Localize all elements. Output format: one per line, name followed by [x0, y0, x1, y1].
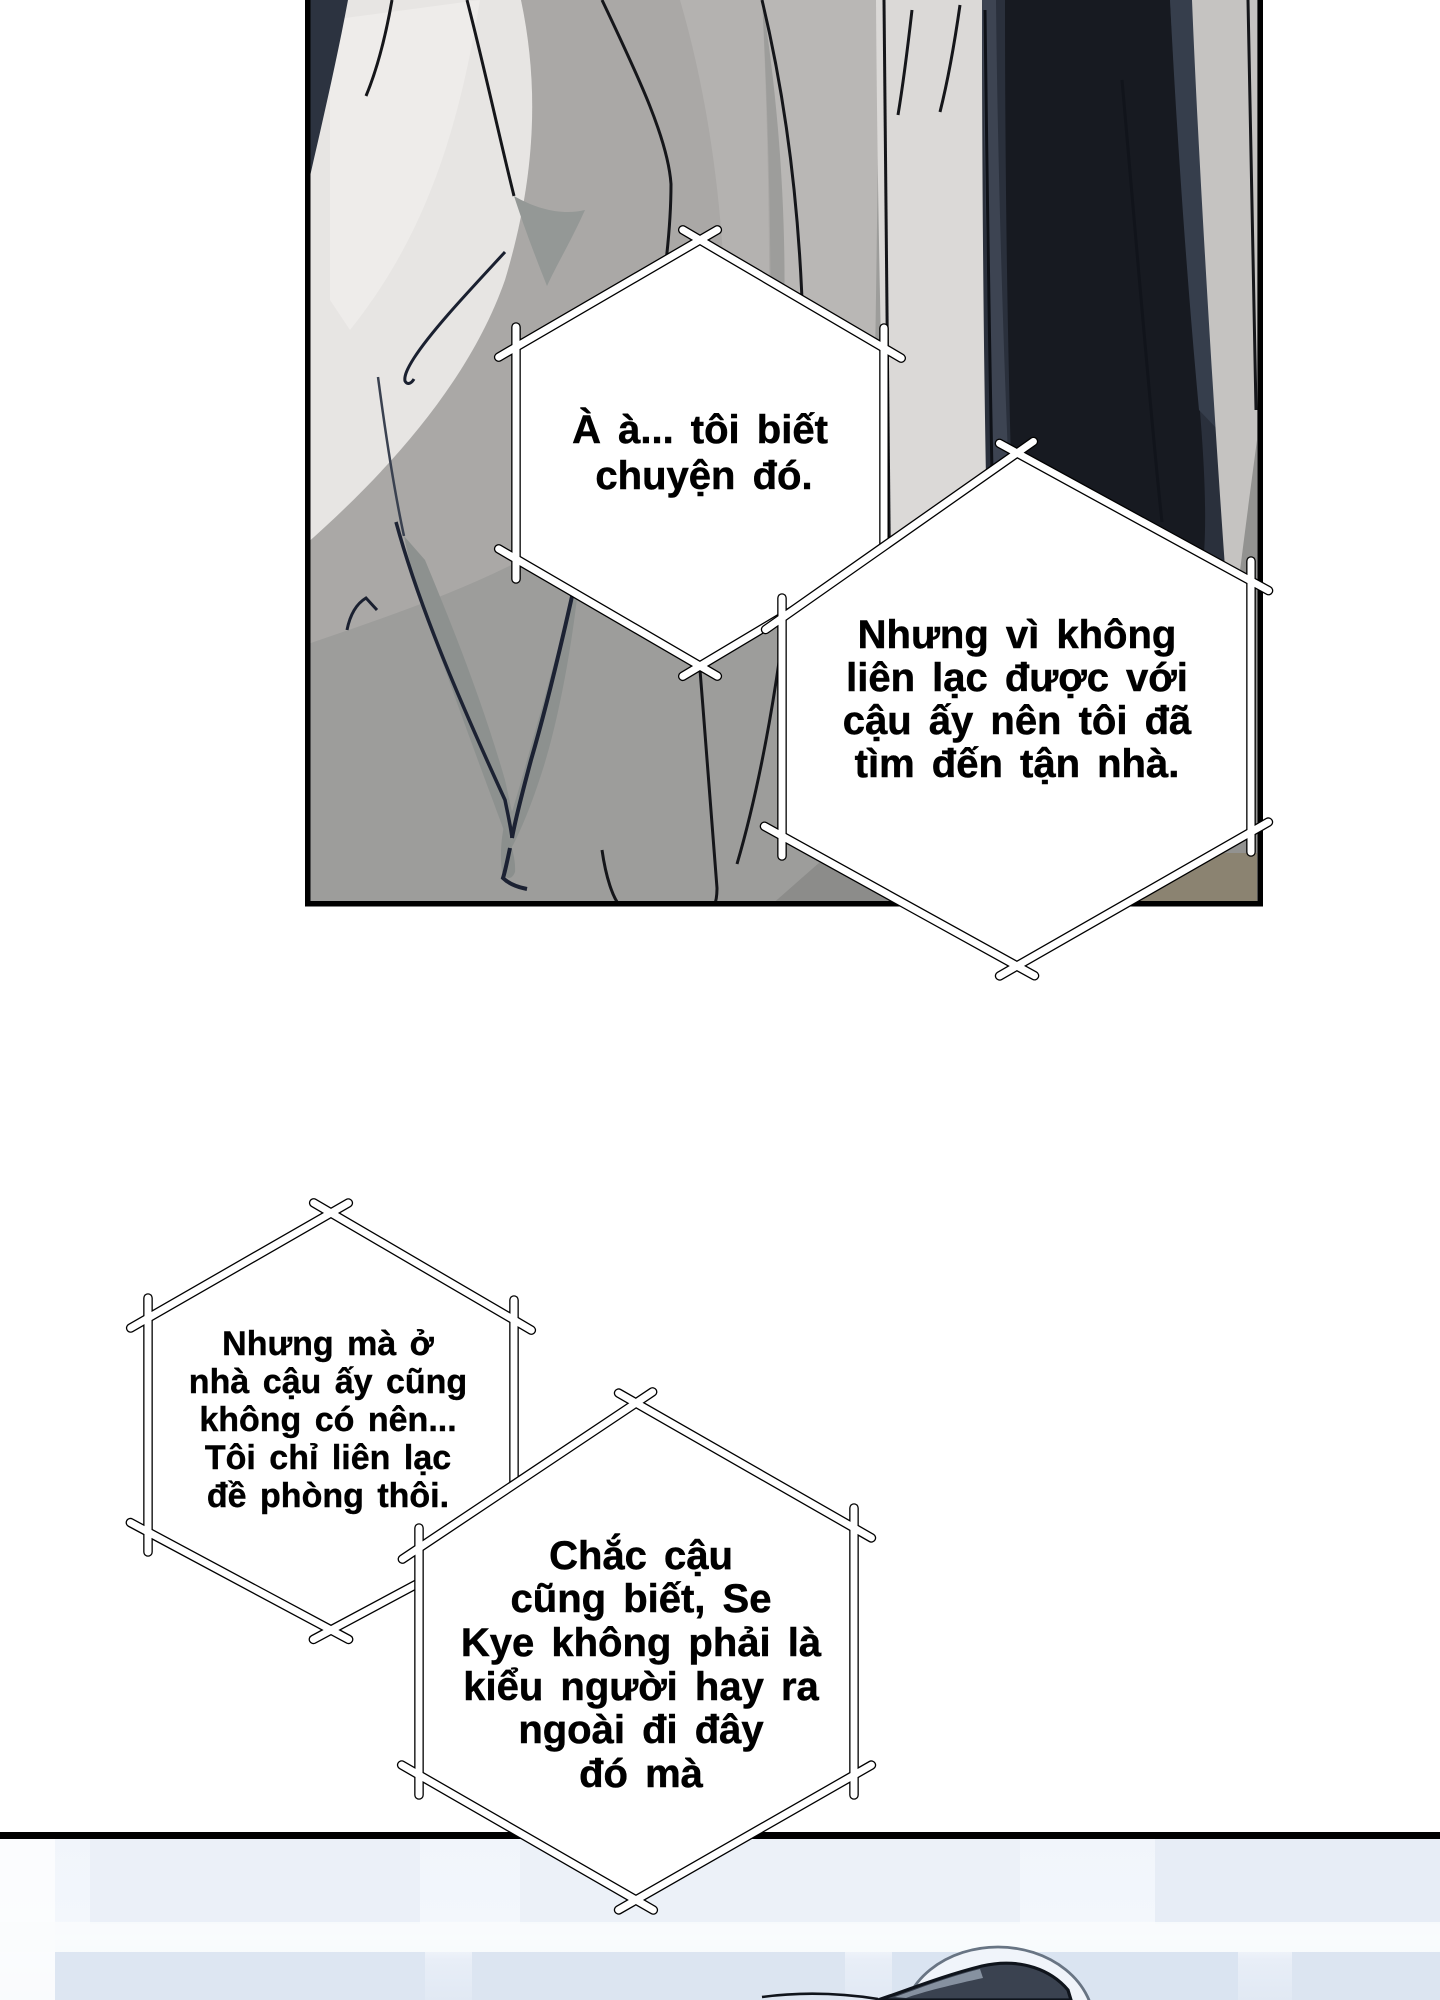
svg-text:đó mà: đó mà	[579, 1752, 704, 1796]
svg-text:Tôi chỉ liên lạc: Tôi chỉ liên lạc	[205, 1439, 451, 1477]
svg-text:đề phòng thôi.: đề phòng thôi.	[207, 1477, 449, 1515]
svg-text:Kye không phải là: Kye không phải là	[461, 1621, 822, 1665]
svg-text:cậu ấy nên tôi đã: cậu ấy nên tôi đã	[843, 699, 1192, 743]
svg-text:Nhưng vì không: Nhưng vì không	[858, 613, 1177, 657]
svg-text:Chắc cậu: Chắc cậu	[549, 1532, 733, 1578]
svg-text:ngoài đi đây: ngoài đi đây	[518, 1708, 764, 1752]
svg-text:kiểu người hay ra: kiểu người hay ra	[463, 1665, 819, 1709]
svg-text:không có nên...: không có nên...	[199, 1401, 456, 1439]
svg-text:cũng biết, Se: cũng biết, Se	[511, 1577, 772, 1621]
svg-text:tìm đến tận nhà.: tìm đến tận nhà.	[855, 742, 1180, 786]
svg-text:liên lạc được với: liên lạc được với	[846, 656, 1188, 700]
svg-text:Nhưng mà ở: Nhưng mà ở	[222, 1325, 435, 1363]
svg-text:chuyện đó.: chuyện đó.	[595, 454, 812, 498]
svg-text:nhà cậu ấy cũng: nhà cậu ấy cũng	[189, 1363, 467, 1401]
svg-text:À à... tôi biết: À à... tôi biết	[572, 407, 828, 452]
